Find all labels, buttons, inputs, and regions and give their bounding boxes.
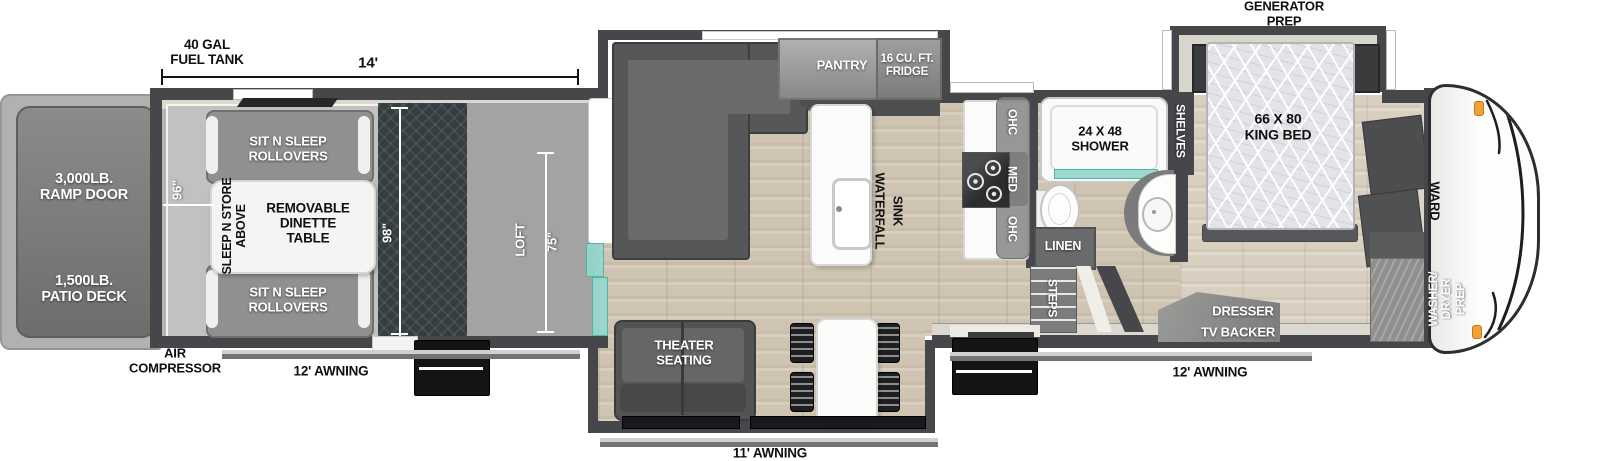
dim-14-tick-right [577, 69, 579, 85]
wardrobe-label: WARD [1427, 182, 1442, 221]
entry-steps-garage-tread [419, 367, 483, 370]
shelves-label: SHELVES [1173, 104, 1186, 158]
dim-98-tick-top [391, 107, 408, 109]
king-bed-label: 66 X 80 KING BED [1245, 111, 1312, 142]
burner-icon [986, 186, 1002, 202]
rollover-sofa-rear-arm-left [206, 270, 218, 328]
med-label: MED [1005, 166, 1018, 192]
floor-plan: 3,000LB. RAMP DOOR 1,500LB. PATIO DECK 4… [0, 0, 1600, 461]
air-compressor-label: AIR COMPRESSOR [129, 346, 221, 375]
tv-backer-label: TV BACKER [1201, 326, 1275, 341]
washer-dryer-label: WASHER/ DRYER PREP [1427, 272, 1467, 327]
dim-98-label: 98" [381, 223, 396, 243]
rollover-rear-label: SIT N SLEEP ROLLOVERS [248, 285, 327, 314]
rollover-sofa-front-arm-left [206, 116, 218, 174]
ohc-lower-label: OHC [1005, 216, 1018, 242]
waterfall-sink [832, 178, 872, 250]
dim-75-tick-top [537, 152, 554, 154]
dinette-chair [790, 372, 814, 412]
sink-faucet [836, 206, 842, 212]
shower-label: 24 X 48 SHOWER [1071, 124, 1128, 153]
vanity-sink [1142, 197, 1173, 232]
dim-75-tick-bottom [537, 331, 554, 333]
ramp-door-label: 3,000LB. RAMP DOOR [40, 171, 128, 203]
sink-label-line2: SINK [890, 196, 905, 226]
marker-light-top-icon [1474, 101, 1484, 116]
garage-spoiler [237, 98, 338, 107]
ohc-upper-label: OHC [1005, 109, 1018, 135]
bed-slide-trim-right [1386, 30, 1396, 90]
fuel-tank-label: 40 GAL FUEL TANK [170, 37, 243, 67]
garage-top-wall [150, 88, 608, 100]
slide-window-mat-left [622, 416, 740, 429]
washer-dryer-upper-cabinet [1370, 232, 1424, 258]
entry-steps-main-tread [956, 370, 1032, 373]
bed-slide-trim-left [1162, 30, 1172, 90]
loft-floor [467, 103, 594, 336]
awning-right-label: 12' AWNING [1173, 364, 1248, 379]
dinette-table-label: REMOVABLE DINETTE TABLE [266, 200, 349, 245]
dinette-chair [790, 323, 814, 363]
rollover-sofa-rear-arm-right [358, 270, 370, 328]
dinette-chair [876, 323, 900, 363]
loft-label: LOFT [514, 223, 529, 256]
entry-steps-main [952, 338, 1038, 395]
awning-left-label: 12' AWNING [294, 363, 369, 378]
dinette-chair [876, 372, 900, 412]
dim-98-tick-bottom [391, 333, 408, 335]
burner-icon [985, 160, 1001, 176]
garage-step-ledge [372, 336, 418, 351]
vanity-faucet [1152, 210, 1156, 214]
theater-seat-divider [681, 322, 684, 415]
sleep-store-label: SLEEP N STORE ABOVE [220, 178, 248, 275]
patio-deck-label: 1,500LB. PATIO DECK [41, 273, 126, 305]
linen-label: LINEN [1045, 239, 1082, 253]
burner-icon [967, 173, 984, 190]
wardrobe-panel-upper [1362, 115, 1431, 196]
theater-slide-left-wall [588, 340, 598, 433]
awning-left-bar [222, 350, 580, 359]
generator-prep-label: GENERATOR PREP [1244, 0, 1324, 29]
cooktop [962, 152, 1010, 208]
rollover-front-label: SIT N SLEEP ROLLOVERS [248, 134, 327, 163]
dim-75-label: 75" [546, 232, 561, 252]
dinette-table [816, 318, 878, 424]
marker-light-bottom-icon [1472, 325, 1482, 339]
dim-98-line [399, 108, 401, 336]
awning-rear-label: 11' AWNING [733, 445, 807, 460]
toilet-bowl [1048, 193, 1071, 225]
theater-seating-label: THEATER SEATING [654, 338, 713, 367]
dim-96-tick [163, 204, 213, 206]
glass-partition-upper [586, 243, 604, 277]
pantry-label: PANTRY [817, 59, 868, 74]
awning-right-bar [950, 352, 1312, 361]
kitchen-window [950, 82, 1034, 93]
steps-label: STEPS [1045, 279, 1058, 317]
rollover-sofa-front-arm-right [358, 116, 370, 174]
sectional-sofa-cushion-left [628, 60, 728, 240]
dim-14-tick-left [161, 69, 163, 85]
slide-window-mat-right [750, 416, 926, 429]
sink-label-line1: WATERFALL [872, 173, 887, 250]
dresser-label: DRESSER [1212, 305, 1273, 320]
fridge-label: 16 CU. FT. FRIDGE [881, 53, 934, 79]
living-slide-left-wall [598, 30, 608, 103]
cargo-floor [378, 103, 467, 336]
dim-96-label: 96" [171, 180, 186, 200]
dim-14-label: 14' [358, 56, 378, 73]
theater-slide-right-wall [925, 340, 935, 433]
glass-partition-lower [592, 277, 608, 336]
garage-rear-wall [150, 88, 162, 348]
dim-14-line [162, 76, 578, 78]
